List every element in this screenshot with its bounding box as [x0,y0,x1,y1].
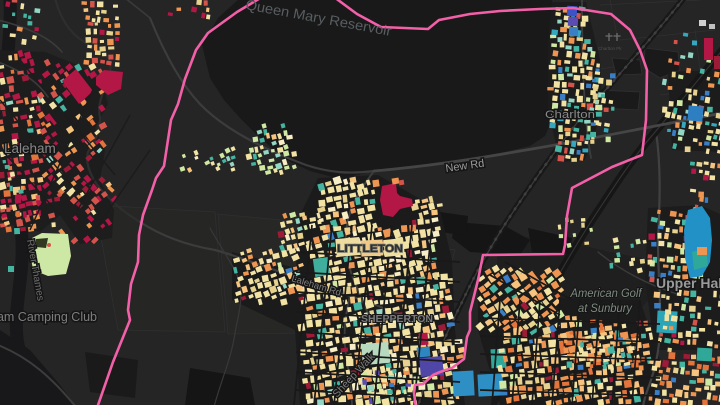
svg-text:LITTLETON: LITTLETON [337,243,403,255]
svg-text:ham Camping Club: ham Camping Club [0,310,97,324]
svg-text:American Golf: American Golf [570,286,643,300]
svg-text:Laleham: Laleham [4,141,56,156]
svg-text:Upper Hallifo: Upper Hallifo [656,275,720,291]
svg-text:Charlton Pk: Charlton Pk [598,46,622,51]
svg-text:SHEPPERTON: SHEPPERTON [361,313,433,325]
svg-text:Charlton: Charlton [545,109,595,121]
svg-text:at Sunbury: at Sunbury [578,301,633,315]
